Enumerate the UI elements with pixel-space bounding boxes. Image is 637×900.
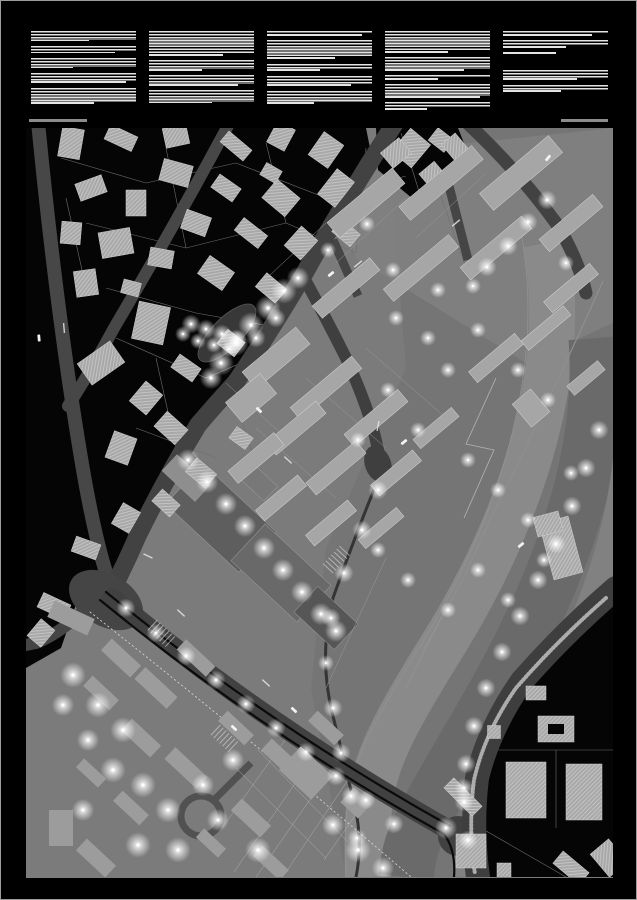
tree-center-dot (190, 323, 193, 326)
tree-center-dot (61, 703, 64, 706)
tree-center-dot (365, 799, 368, 802)
paragraph-greeked (31, 46, 136, 53)
tree-center-dot (507, 599, 509, 601)
tree-center-dot (231, 758, 234, 761)
existing-building (98, 227, 134, 258)
tree-center-dot (472, 285, 474, 287)
tree-center-dot (357, 439, 359, 441)
tree-center-dot (281, 568, 284, 571)
paragraph-greeked (385, 57, 490, 70)
existing-building (566, 764, 602, 820)
tree-center-dot (598, 429, 601, 432)
map-caption-left-illegible (29, 119, 87, 122)
tree-center-dot (141, 783, 145, 787)
tree-center-dot (477, 569, 479, 571)
tree-center-dot (381, 866, 384, 869)
tree-center-dot (485, 687, 488, 690)
tree-center-dot (209, 376, 212, 379)
tree-center-dot (543, 559, 545, 561)
tree-center-dot (275, 317, 278, 320)
tree-center-dot (407, 579, 409, 581)
flat-building (49, 810, 73, 846)
tree-center-dot (186, 458, 189, 461)
tree-center-dot (332, 707, 335, 710)
tree-center-dot (467, 459, 469, 461)
paragraph-greeked (31, 58, 136, 68)
tree-center-dot (224, 502, 227, 505)
existing-building (488, 726, 501, 739)
site-plan-svg (26, 128, 613, 877)
paragraph-greeked (503, 70, 608, 80)
text-panel (31, 31, 608, 121)
tree-center-dot (547, 399, 549, 401)
tree-center-dot (176, 848, 180, 852)
tree-center-dot (197, 340, 199, 342)
paragraph-greeked (267, 76, 372, 86)
poster (0, 0, 637, 900)
tree-center-dot (327, 249, 329, 251)
tree-center-dot (366, 223, 368, 225)
tree-center-dot (282, 289, 286, 293)
tree-center-dot (155, 632, 158, 635)
tree-center-dot (340, 752, 343, 755)
tree-center-dot (136, 843, 140, 847)
tree-center-dot (393, 823, 396, 826)
paragraph-greeked (31, 73, 136, 83)
tree-center-dot (111, 768, 115, 772)
tree-center-dot (447, 609, 449, 611)
tree-center-dot (305, 751, 308, 754)
tree-center-dot (447, 369, 449, 371)
tree-center-dot (262, 546, 265, 549)
text-column-2 (149, 31, 254, 121)
tree-center-dot (234, 341, 238, 345)
tree-center-dot (343, 572, 346, 575)
existing-building (148, 247, 175, 269)
tree-center-dot (331, 823, 334, 826)
tree-center-dot (166, 808, 170, 812)
tree-center-dot (377, 549, 379, 551)
paragraph-greeked (385, 31, 490, 53)
tree-center-dot (427, 337, 429, 339)
tree-center-dot (395, 317, 397, 319)
paragraph-greeked (149, 31, 254, 56)
paragraph-greeked (503, 31, 608, 36)
tree-center-dot (571, 505, 574, 508)
tree-center-dot (296, 276, 299, 279)
tree-center-dot (546, 199, 549, 202)
tree-center-dot (213, 344, 215, 346)
tree-center-dot (444, 826, 447, 829)
existing-building (126, 190, 146, 216)
tree-center-dot (585, 467, 588, 470)
paragraph-greeked (503, 85, 608, 92)
paragraph-greeked (385, 102, 490, 109)
tree-center-dot (507, 245, 510, 248)
tree-center-dot (555, 543, 558, 546)
paragraph-greeked (31, 88, 136, 104)
tree-center-dot (517, 369, 519, 371)
text-column-4 (385, 31, 490, 121)
tree-center-dot (377, 489, 380, 492)
paragraph-greeked (503, 52, 608, 54)
paragraph-greeked (267, 40, 372, 59)
paragraph-greeked (385, 75, 490, 80)
tree-center-dot (201, 783, 204, 786)
tree-center-dot (486, 266, 489, 269)
tree-center-dot (266, 306, 270, 310)
existing-building (526, 686, 546, 700)
tree-center-dot (465, 763, 468, 766)
tree-center-dot (249, 323, 253, 327)
tree-center-dot (215, 679, 218, 682)
site-plan-map (26, 128, 613, 878)
text-column-5 (503, 31, 608, 121)
tree-center-dot (255, 337, 258, 340)
tree-center-dot (300, 590, 303, 593)
paragraph-greeked (503, 40, 608, 47)
paragraph-greeked (385, 84, 490, 97)
existing-building (506, 762, 546, 818)
tree-center-dot (537, 579, 540, 582)
tree-center-dot (125, 607, 128, 610)
tree-center-dot (219, 361, 223, 365)
map-caption-right-illegible (561, 119, 608, 122)
existing-building (497, 863, 511, 877)
tree-center-dot (497, 489, 499, 491)
tree-center-dot (86, 738, 89, 741)
tree-center-dot (350, 795, 353, 798)
paragraph-greeked (31, 31, 136, 41)
paragraph-greeked (267, 91, 372, 104)
tree-center-dot (325, 662, 327, 664)
tree-center-dot (330, 617, 333, 620)
tree-center-dot (570, 472, 572, 474)
tree-center-dot (245, 703, 248, 706)
tree-center-dot (81, 808, 84, 811)
building-courtyard (548, 724, 564, 734)
paragraph-greeked (267, 31, 372, 36)
tree-center-dot (477, 329, 479, 331)
text-column-1 (31, 31, 136, 121)
tree-center-dot (527, 221, 530, 224)
tree-center-dot (387, 389, 389, 391)
paragraph-greeked (149, 90, 254, 103)
tree-center-dot (437, 289, 439, 291)
tree-center-dot (519, 615, 522, 618)
tree-center-dot (96, 703, 100, 707)
tree-center-dot (121, 728, 125, 732)
tree-center-dot (221, 333, 224, 336)
tree-center-dot (205, 328, 208, 331)
tree-center-dot (71, 673, 75, 677)
tree-center-dot (185, 655, 188, 658)
tree-center-dot (243, 524, 246, 527)
tree-center-dot (417, 429, 419, 431)
tree-center-dot (565, 262, 567, 264)
tree-center-dot (334, 629, 337, 632)
paragraph-greeked (149, 75, 254, 85)
tree-center-dot (467, 839, 470, 842)
tree-center-dot (463, 801, 466, 804)
tree-center-dot (392, 269, 394, 271)
tree-center-dot (473, 725, 476, 728)
tree-center-dot (256, 848, 260, 852)
tree-center-dot (361, 529, 364, 532)
existing-building (60, 221, 82, 245)
tree-center-dot (356, 848, 360, 852)
text-column-3 (267, 31, 372, 121)
paragraph-greeked (267, 64, 372, 71)
tree-center-dot (463, 787, 466, 790)
tree-center-dot (205, 480, 208, 483)
tree-center-dot (527, 519, 529, 521)
tree-center-dot (501, 651, 504, 654)
existing-building (73, 269, 98, 298)
paragraph-greeked (149, 60, 254, 70)
tree-center-dot (182, 333, 184, 335)
tree-center-dot (216, 818, 219, 821)
tree-center-dot (335, 775, 338, 778)
tree-center-dot (275, 727, 278, 730)
